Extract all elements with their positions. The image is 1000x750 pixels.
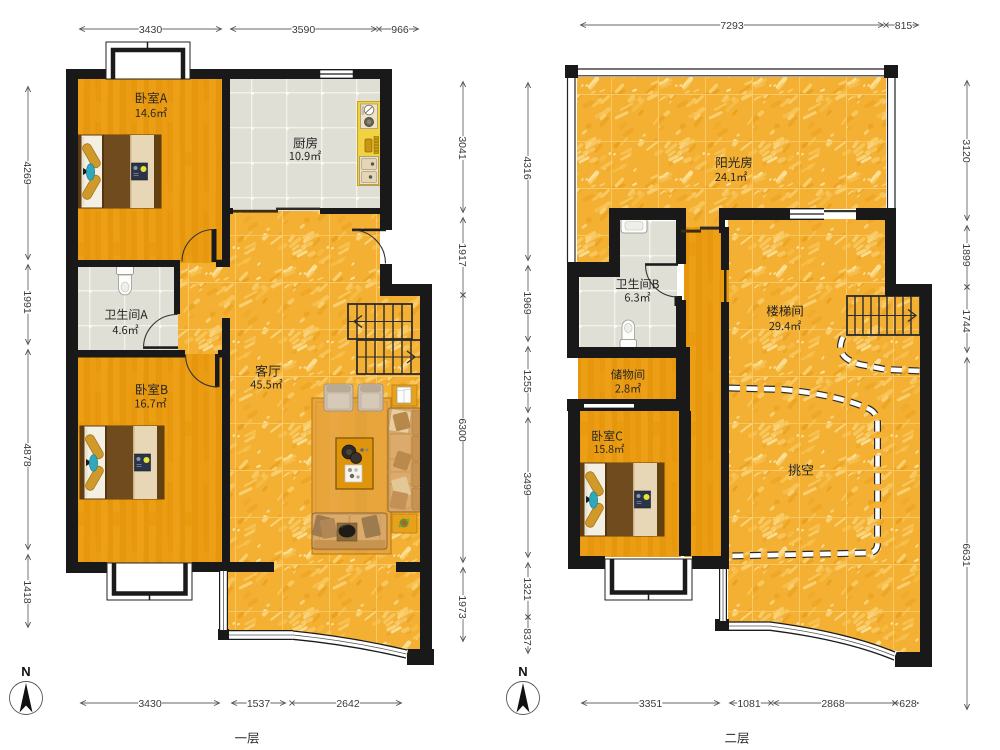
svg-text:2642: 2642 — [336, 698, 360, 710]
svg-text:2868: 2868 — [821, 698, 845, 710]
svg-text:1321: 1321 — [521, 577, 533, 601]
svg-text:966: 966 — [391, 24, 409, 36]
svg-text:1973: 1973 — [456, 595, 468, 619]
svg-text:7293: 7293 — [720, 20, 744, 32]
svg-text:3120: 3120 — [960, 139, 972, 163]
svg-text:1899: 1899 — [960, 243, 972, 267]
svg-text:3430: 3430 — [139, 24, 163, 36]
svg-text:4269: 4269 — [21, 161, 33, 185]
svg-text:3041: 3041 — [456, 136, 468, 160]
svg-text:1917: 1917 — [456, 243, 468, 267]
svg-text:1418: 1418 — [21, 580, 33, 604]
svg-text:4878: 4878 — [21, 443, 33, 467]
svg-text:3499: 3499 — [521, 472, 533, 496]
svg-text:1081: 1081 — [737, 698, 761, 710]
svg-text:4316: 4316 — [521, 156, 533, 180]
svg-text:815: 815 — [895, 20, 913, 32]
svg-text:3351: 3351 — [639, 698, 663, 710]
svg-text:1744: 1744 — [960, 309, 972, 333]
svg-text:N: N — [518, 664, 527, 679]
svg-text:3430: 3430 — [138, 698, 162, 710]
svg-text:1537: 1537 — [247, 698, 271, 710]
svg-text:1255: 1255 — [521, 369, 533, 393]
svg-text:837: 837 — [521, 628, 533, 646]
svg-text:6631: 6631 — [960, 543, 972, 567]
svg-text:1991: 1991 — [21, 290, 33, 314]
svg-text:628: 628 — [899, 698, 917, 710]
svg-text:3590: 3590 — [292, 24, 316, 36]
svg-text:N: N — [21, 664, 30, 679]
svg-text:1969: 1969 — [521, 291, 533, 315]
svg-text:6300: 6300 — [456, 418, 468, 442]
